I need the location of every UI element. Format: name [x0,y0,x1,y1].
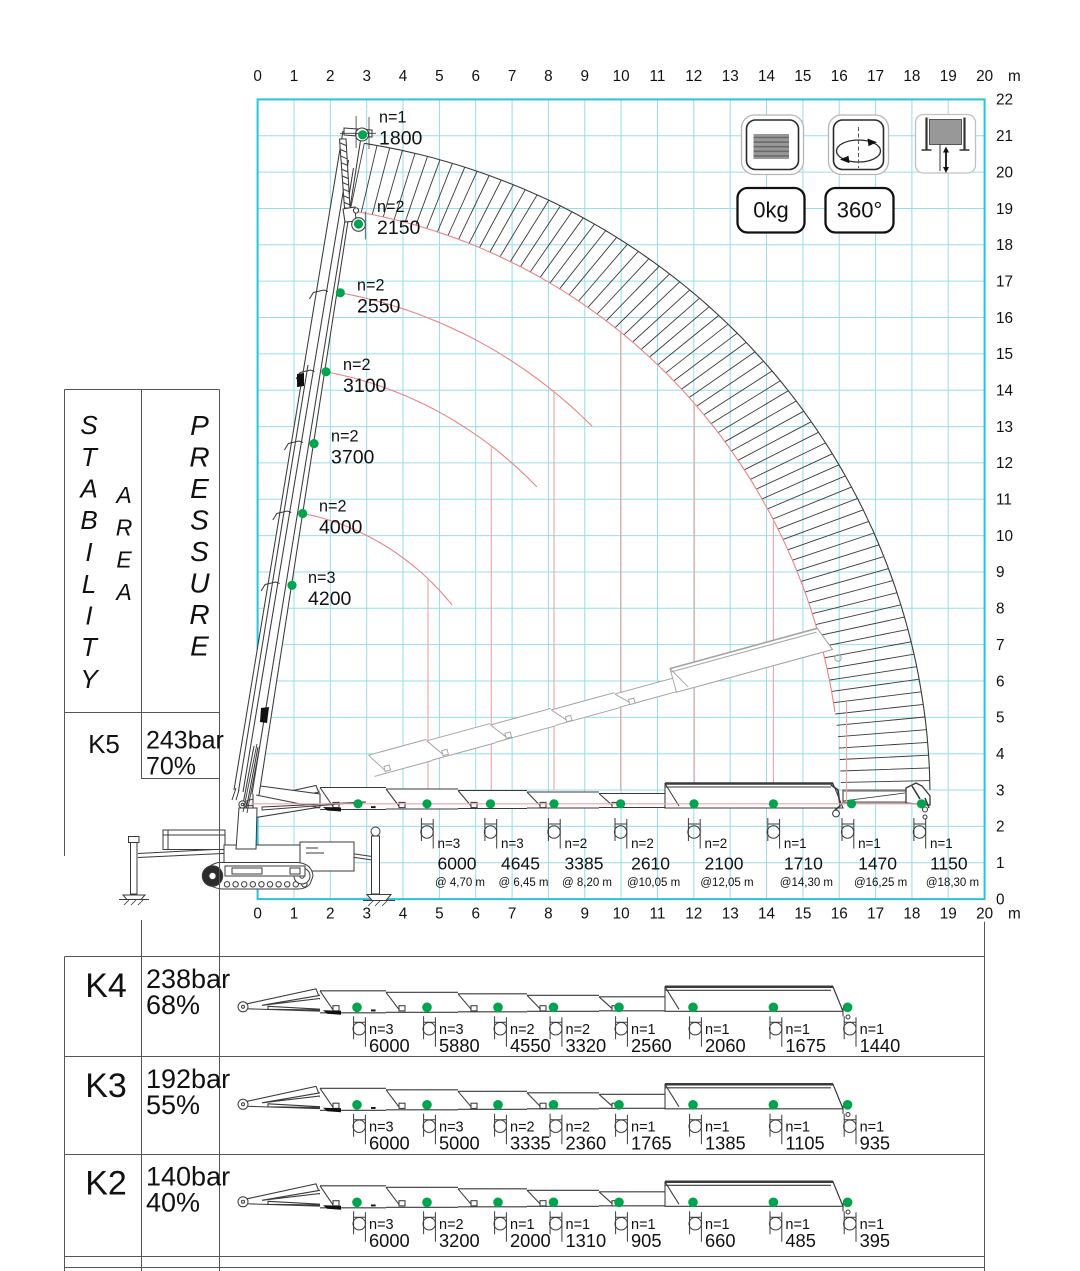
svg-text:0: 0 [253,906,262,923]
svg-text:15: 15 [794,906,811,923]
svg-text:13: 13 [722,906,739,923]
svg-text:6000: 6000 [369,1132,410,1153]
svg-text:16: 16 [831,68,848,85]
svg-text:3320: 3320 [566,1035,607,1056]
svg-text:n=2: n=2 [357,277,384,295]
svg-text:1150: 1150 [930,854,968,874]
svg-text:12: 12 [685,68,702,85]
svg-text:4000: 4000 [319,517,363,539]
svg-text:16: 16 [831,906,848,923]
svg-text:15: 15 [794,68,811,85]
svg-text:m: m [1008,906,1021,923]
svg-text:7: 7 [996,637,1005,654]
svg-text:E: E [190,473,209,504]
svg-text:E: E [190,631,209,662]
svg-text:4: 4 [399,68,408,85]
svg-text:1470: 1470 [858,854,897,874]
svg-text:20: 20 [976,68,993,85]
svg-text:@16,25 m: @16,25 m [854,877,907,889]
svg-text:16: 16 [996,310,1013,327]
svg-text:0kg: 0kg [753,198,788,223]
svg-text:P: P [190,410,209,441]
svg-text:10: 10 [996,528,1013,545]
svg-text:2000: 2000 [510,1230,551,1251]
svg-text:n=2: n=2 [377,198,404,216]
svg-text:18: 18 [996,237,1013,254]
svg-text:2550: 2550 [357,296,401,318]
svg-text:n=2: n=2 [319,498,346,516]
svg-text:11: 11 [650,906,666,923]
svg-text:1710: 1710 [784,854,823,874]
svg-text:n=2: n=2 [343,356,370,374]
svg-text:n=2: n=2 [565,836,588,851]
svg-text:360°: 360° [837,198,883,223]
svg-text:B: B [80,505,97,535]
svg-text:@18,30 m: @18,30 m [926,877,979,889]
svg-text:6: 6 [471,906,480,923]
svg-text:13: 13 [996,419,1013,436]
svg-text:n=1: n=1 [784,836,807,851]
svg-text:T: T [81,442,99,472]
svg-text:2100: 2100 [705,854,744,874]
svg-text:20: 20 [996,164,1013,181]
svg-text:U: U [189,568,210,599]
svg-text:K3: K3 [85,1067,127,1105]
svg-text:m: m [1008,68,1021,85]
svg-text:3385: 3385 [565,854,604,874]
svg-text:1385: 1385 [705,1132,746,1153]
svg-text:K5: K5 [88,729,120,759]
svg-text:2: 2 [996,819,1005,836]
svg-text:1675: 1675 [785,1035,826,1056]
svg-text:5: 5 [435,68,444,85]
svg-text:n=2: n=2 [331,428,358,446]
svg-text:395: 395 [860,1230,891,1251]
svg-text:n=3: n=3 [308,569,335,587]
svg-text:8: 8 [544,906,553,923]
svg-text:n=2: n=2 [631,836,654,851]
svg-text:L: L [82,569,96,599]
svg-text:2610: 2610 [631,854,670,874]
svg-text:S: S [190,505,209,536]
svg-text:I: I [85,537,92,567]
svg-text:905: 905 [631,1230,662,1251]
svg-text:2150: 2150 [377,217,421,239]
svg-text:E: E [116,547,132,573]
svg-text:4645: 4645 [501,854,540,874]
svg-text:68%: 68% [146,990,200,1020]
svg-text:18: 18 [903,906,920,923]
svg-text:11: 11 [650,68,666,85]
svg-text:6: 6 [471,68,480,85]
svg-text:70%: 70% [146,753,196,781]
svg-text:2: 2 [326,906,335,923]
svg-text:1440: 1440 [860,1035,901,1056]
svg-text:0: 0 [996,891,1005,908]
svg-text:5880: 5880 [439,1035,480,1056]
svg-text:6000: 6000 [438,854,477,874]
svg-text:10: 10 [613,906,630,923]
svg-text:6000: 6000 [369,1035,410,1056]
svg-text:8: 8 [544,68,553,85]
svg-text:n=3: n=3 [501,836,524,851]
svg-text:1: 1 [290,68,299,85]
svg-text:n=1: n=1 [379,109,406,127]
svg-text:A: A [114,579,131,605]
svg-text:17: 17 [867,68,884,85]
svg-text:6000: 6000 [369,1230,410,1251]
svg-text:3100: 3100 [343,375,387,397]
svg-text:4200: 4200 [308,588,352,610]
svg-text:5: 5 [435,906,444,923]
svg-text:1105: 1105 [785,1132,824,1153]
svg-text:0: 0 [253,68,262,85]
svg-text:5000: 5000 [439,1132,480,1153]
svg-text:K2: K2 [85,1165,127,1203]
svg-text:17: 17 [867,906,884,923]
svg-text:22: 22 [996,92,1013,109]
svg-text:n=1: n=1 [858,836,881,851]
svg-text:n=3: n=3 [438,836,461,851]
svg-text:R: R [189,599,209,630]
svg-text:2060: 2060 [705,1035,746,1056]
svg-text:R: R [116,514,133,540]
svg-text:1: 1 [996,855,1005,872]
svg-text:9: 9 [581,906,590,923]
svg-text:14: 14 [758,906,776,923]
svg-text:18: 18 [903,68,920,85]
svg-text:40%: 40% [146,1188,200,1218]
svg-text:12: 12 [996,455,1013,472]
svg-text:7: 7 [508,906,517,923]
svg-text:@ 6,45 m: @ 6,45 m [498,877,548,889]
svg-text:21: 21 [996,128,1013,145]
svg-text:1765: 1765 [631,1132,672,1153]
svg-text:9: 9 [996,564,1005,581]
svg-text:Y: Y [80,664,99,694]
svg-text:11: 11 [996,492,1012,509]
svg-text:S: S [80,410,98,440]
svg-text:@12,05 m: @12,05 m [700,877,753,889]
svg-text:R: R [189,442,209,473]
svg-text:1310: 1310 [566,1230,607,1251]
svg-text:A: A [78,474,97,504]
svg-text:15: 15 [996,346,1013,363]
svg-text:4: 4 [996,746,1005,763]
svg-text:4550: 4550 [510,1035,551,1056]
svg-text:2: 2 [326,68,335,85]
svg-text:6: 6 [996,673,1005,690]
svg-text:T: T [81,632,99,662]
svg-text:A: A [114,482,131,508]
svg-text:@14,30 m: @14,30 m [780,877,833,889]
svg-text:S: S [190,536,209,567]
svg-text:3200: 3200 [439,1230,480,1251]
svg-text:5: 5 [996,710,1005,727]
svg-text:1: 1 [290,906,299,923]
svg-text:19: 19 [940,68,957,85]
svg-text:@ 8,20 m: @ 8,20 m [562,877,612,889]
svg-text:12: 12 [685,906,702,923]
svg-text:55%: 55% [146,1090,200,1120]
svg-text:3700: 3700 [331,447,375,469]
svg-text:19: 19 [940,906,957,923]
svg-text:3335: 3335 [510,1132,551,1153]
svg-text:14: 14 [996,383,1014,400]
svg-text:660: 660 [705,1230,736,1251]
svg-text:I: I [85,601,92,631]
svg-text:7: 7 [508,68,517,85]
svg-text:n=2: n=2 [705,836,728,851]
svg-text:17: 17 [996,273,1013,290]
svg-text:9: 9 [581,68,590,85]
svg-text:2360: 2360 [566,1132,607,1153]
svg-text:3: 3 [996,782,1005,799]
svg-text:2560: 2560 [631,1035,672,1056]
svg-text:20: 20 [976,906,993,923]
svg-text:4: 4 [399,906,408,923]
svg-text:8: 8 [996,601,1005,618]
svg-text:3: 3 [362,68,371,85]
svg-text:13: 13 [722,68,739,85]
svg-text:n=1: n=1 [930,836,953,851]
svg-text:14: 14 [758,68,776,85]
svg-text:@ 4,70 m: @ 4,70 m [435,877,485,889]
svg-text:19: 19 [996,201,1013,218]
svg-text:935: 935 [860,1132,891,1153]
svg-text:485: 485 [785,1230,816,1251]
svg-text:10: 10 [613,68,630,85]
svg-text:@10,05 m: @10,05 m [627,877,680,889]
svg-text:1800: 1800 [379,128,423,150]
svg-text:3: 3 [362,906,371,923]
svg-text:243bar: 243bar [146,727,224,755]
svg-text:K4: K4 [85,967,127,1005]
